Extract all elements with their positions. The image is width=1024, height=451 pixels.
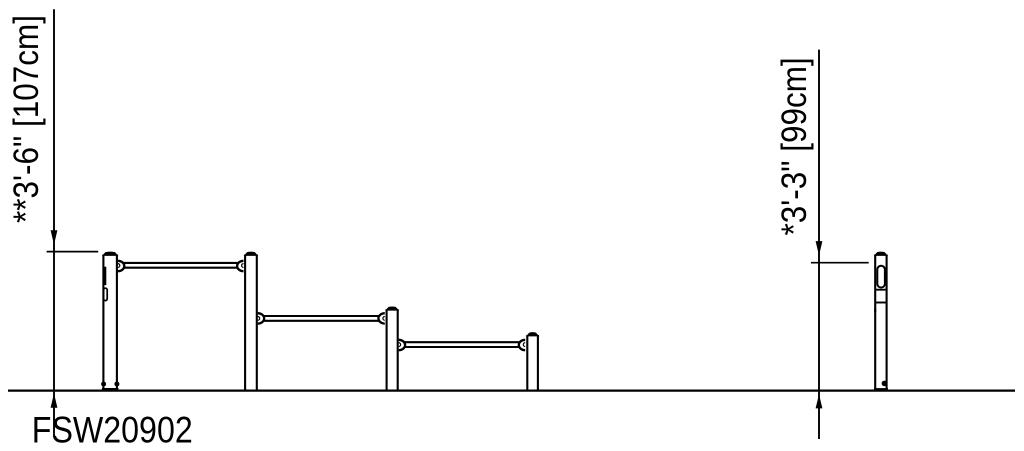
svg-text:*3'-3" [99cm]: *3'-3" [99cm] [776,57,815,235]
svg-text:**3'-6" [107cm]: **3'-6" [107cm] [8,15,47,223]
svg-text:FSW20902: FSW20902 [32,410,193,451]
